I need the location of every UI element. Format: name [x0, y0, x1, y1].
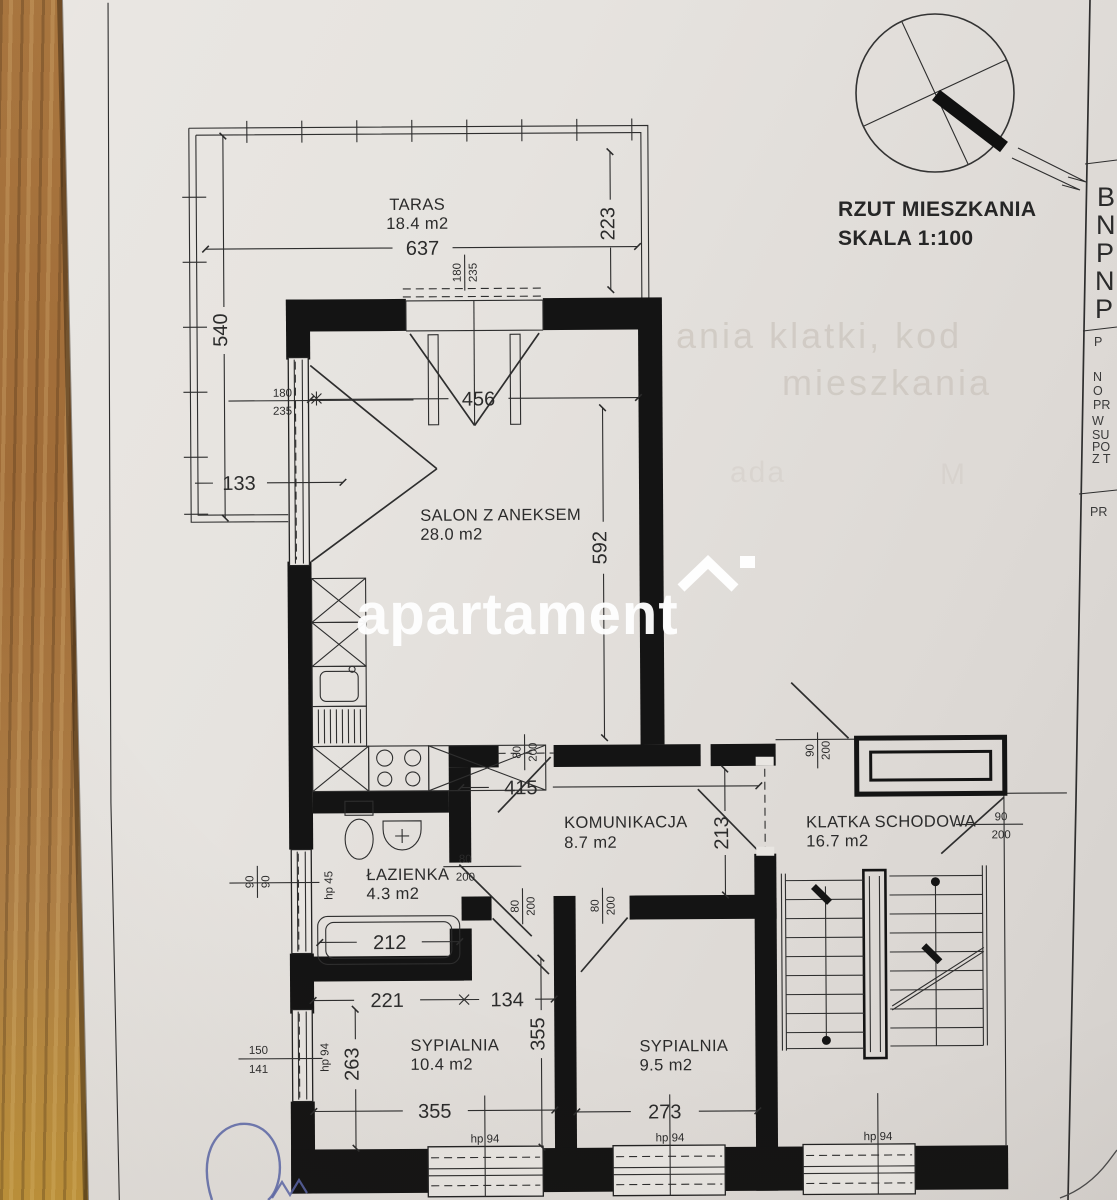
svg-text:90: 90	[805, 744, 817, 757]
label-bath-window-size: 90 90	[244, 866, 272, 898]
label-salon-hall-door-size: 80 200	[512, 734, 540, 770]
ghost-line1: ania klatki, kod	[676, 315, 962, 356]
room-name-taras: TARAS	[389, 196, 445, 214]
label-bath-door-size: 80 200	[456, 854, 475, 884]
bathroom-window	[291, 850, 312, 954]
dim-bed-mid: 355	[527, 1017, 549, 1051]
title-block-fragment-2: N	[1096, 210, 1116, 240]
staircase	[775, 681, 1069, 1147]
north-compass-icon	[856, 14, 1086, 190]
svg-text:200: 200	[526, 897, 538, 916]
label-sill-stair: hp 94	[864, 1131, 893, 1143]
room-area-lazienka: 4.3 m2	[366, 885, 419, 903]
svg-text:200: 200	[456, 872, 475, 884]
ghost-show-through-text: ania klatki, kod mieszkania ada M	[676, 315, 992, 491]
dim-hall-depth: 213	[711, 816, 733, 850]
svg-text:200: 200	[992, 829, 1011, 841]
title-block-small-3: O	[1093, 384, 1103, 398]
ghost-line2: mieszkania	[782, 362, 992, 403]
dim-hall-width: 415	[504, 777, 538, 799]
svg-text:235: 235	[468, 263, 480, 282]
drawing-scale: SKALA 1:100	[838, 227, 974, 250]
dim-bed1-width: 355	[418, 1101, 452, 1123]
watermark-roof-icon	[681, 556, 755, 588]
dim-bath-width: 212	[373, 932, 407, 954]
dim-taras-depth: 223	[597, 207, 619, 241]
svg-text:80: 80	[510, 900, 522, 913]
label-stair-right-door-size: 90 200	[991, 811, 1010, 841]
salon-side-window	[288, 357, 437, 566]
svg-text:180: 180	[273, 388, 292, 400]
svg-text:80: 80	[459, 854, 472, 866]
dim-bed1-top-b: 134	[490, 989, 524, 1011]
label-stair-top-door-size: 90 200	[805, 732, 833, 768]
dim-salon-length: 592	[589, 531, 611, 565]
watermark: apartament	[356, 556, 755, 647]
label-balcony-door-size: 180 235	[452, 254, 480, 290]
room-name-sypialnia1: SYPIALNIA	[410, 1036, 499, 1055]
room-name-komunikacja: KOMUNIKACJA	[564, 813, 688, 832]
label-sill-bed1-side: hp 94	[319, 1042, 331, 1071]
room-area-komunikacja: 8.7 m2	[564, 834, 617, 852]
title-block-small-1: P	[1094, 335, 1102, 349]
floor-plan-drawing: TARAS 18.4 m2 SALON Z ANEKSEM 28.0 m2 KO…	[0, 0, 1117, 1200]
label-sill-bed1: hp 94	[471, 1133, 500, 1145]
title-block-fragment-5: P	[1095, 294, 1113, 324]
dim-taras-width: 637	[406, 238, 440, 260]
title-block-small-4: PR	[1093, 398, 1110, 412]
svg-text:90: 90	[995, 811, 1008, 823]
dim-bed1-side: 263	[341, 1048, 363, 1082]
title-block: B N P N P P N O PR W SU PO Z T PR	[1068, 0, 1117, 1200]
svg-text:90: 90	[260, 875, 272, 888]
dim-taras-side: 540	[210, 313, 232, 347]
ghost-line3b: M	[940, 458, 967, 491]
svg-text:90: 90	[244, 875, 256, 888]
label-bed2-door-size: 80 200	[589, 888, 617, 924]
title-block-small-5: W	[1092, 414, 1104, 428]
room-area-klatka: 16.7 m2	[806, 832, 869, 850]
bedroom1-side-window	[292, 1010, 313, 1102]
svg-text:150: 150	[249, 1045, 268, 1057]
label-sill-bed2: hp 94	[656, 1132, 685, 1144]
dim-taras-edge: 133	[222, 473, 256, 495]
title-block-fragment-3: P	[1096, 238, 1114, 268]
title-block-small-8: Z T	[1092, 452, 1111, 466]
room-name-salon: SALON Z ANEKSEM	[420, 506, 581, 525]
svg-text:80: 80	[590, 899, 602, 912]
dim-bed2-width: 273	[648, 1101, 682, 1123]
dim-salon-width: 456	[462, 388, 496, 410]
sheet-frame-line	[106, 3, 119, 1200]
svg-text:235: 235	[273, 406, 292, 418]
label-sill-bath: hp 45	[323, 871, 335, 900]
svg-text:80: 80	[512, 746, 524, 759]
room-area-salon: 28.0 m2	[420, 525, 483, 543]
ghost-line3a: ada	[730, 456, 786, 489]
svg-text:200: 200	[821, 741, 833, 760]
svg-text:200: 200	[528, 743, 540, 762]
label-bed1-side-window-size: 150 141	[249, 1045, 268, 1076]
room-name-klatka: KLATKA SCHODOWA	[806, 812, 976, 831]
room-area-sypialnia2: 9.5 m2	[639, 1056, 692, 1074]
title-block-fragment-1: B	[1097, 182, 1115, 212]
svg-text:200: 200	[606, 896, 618, 915]
photographed-floor-plan: TARAS 18.4 m2 SALON Z ANEKSEM 28.0 m2 KO…	[0, 0, 1117, 1200]
svg-text:180: 180	[452, 263, 464, 282]
room-area-taras: 18.4 m2	[386, 215, 449, 233]
room-name-sypialnia2: SYPIALNIA	[639, 1037, 728, 1056]
room-area-sypialnia1: 10.4 m2	[410, 1056, 473, 1074]
room-name-lazienka: ŁAZIENKA	[366, 866, 449, 885]
svg-text:141: 141	[249, 1064, 268, 1076]
watermark-text: apartament	[356, 582, 679, 647]
title-block-bottom-fragment: PR	[1090, 505, 1107, 519]
title-block-small-2: N	[1093, 370, 1102, 384]
title-block-fragment-4: N	[1095, 266, 1115, 296]
drawing-title: RZUT MIESZKANIA	[838, 198, 1037, 221]
dim-bed1-top-a: 221	[370, 990, 404, 1012]
